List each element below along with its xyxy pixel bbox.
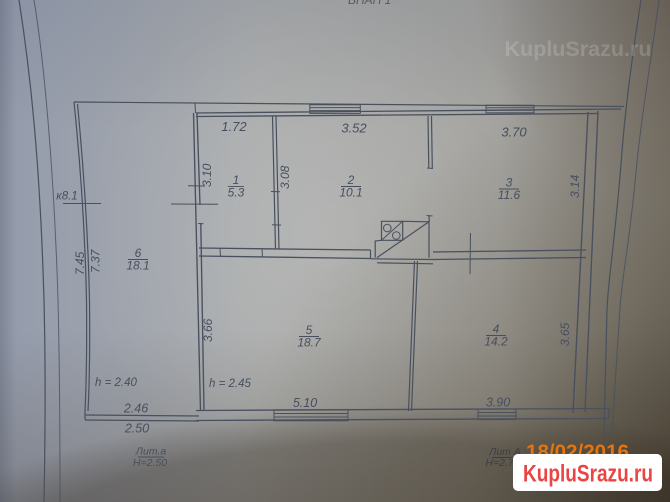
svg-text:2.46: 2.46 [123,402,148,416]
svg-text:18.7: 18.7 [297,336,322,350]
svg-text:5.10: 5.10 [293,396,317,410]
svg-text:2.50: 2.50 [124,422,149,436]
svg-text:3.08: 3.08 [278,165,292,189]
svg-text:7.45: 7.45 [73,251,87,275]
svg-text:1.72: 1.72 [221,119,247,134]
svg-text:ВНАН 1: ВНАН 1 [348,0,391,7]
svg-text:к8.1: к8.1 [56,191,77,203]
svg-text:3.65: 3.65 [558,322,572,346]
svg-text:3.52: 3.52 [341,121,367,136]
svg-text:3.10: 3.10 [200,163,214,187]
svg-text:Н=2.50: Н=2.50 [133,457,167,469]
svg-text:3.90: 3.90 [486,396,510,410]
svg-text:10.1: 10.1 [339,186,362,200]
svg-text:3.70: 3.70 [501,125,527,140]
svg-text:7.37: 7.37 [89,248,103,273]
svg-text:KupluSrazu.ru: KupluSrazu.ru [505,37,652,61]
svg-text:h = 2.45: h = 2.45 [209,378,251,390]
svg-text:Лит.а: Лит.а [135,446,167,458]
svg-text:KupluSrazu.ru: KupluSrazu.ru [523,461,653,488]
svg-text:11.6: 11.6 [498,188,521,202]
svg-text:h = 2.40: h = 2.40 [95,377,137,389]
svg-text:3.14: 3.14 [568,174,582,198]
svg-text:14.2: 14.2 [484,335,508,349]
svg-text:18.1: 18.1 [126,259,149,273]
svg-text:3.66: 3.66 [201,318,215,342]
svg-text:5.3: 5.3 [228,186,245,200]
svg-text:Н=2.7,: Н=2.7, [485,457,516,469]
